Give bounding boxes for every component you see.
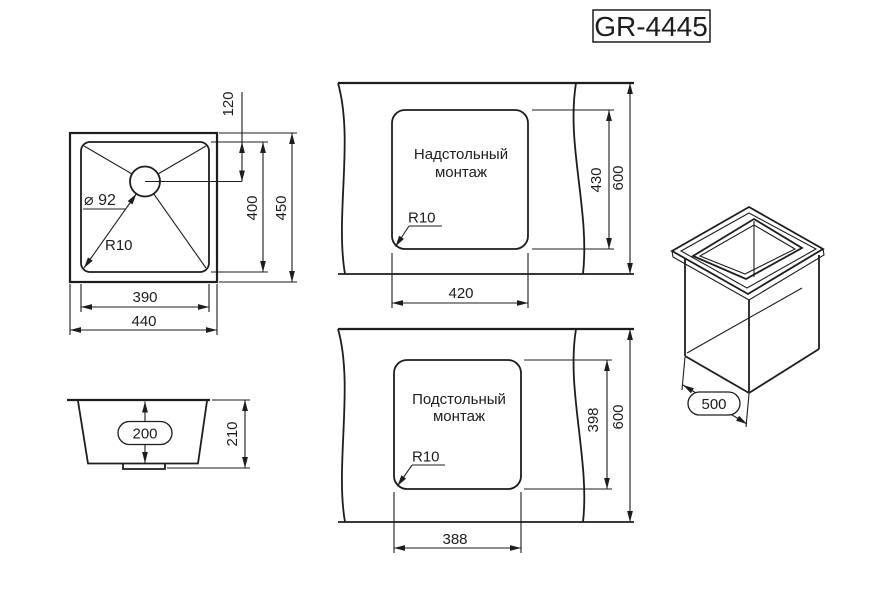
undermount-radius-leader (398, 465, 413, 486)
dim-120-label: 120 (220, 91, 237, 116)
drain-diameter-label: ⌀ 92 (84, 192, 116, 209)
iso-rim-outer (672, 207, 823, 294)
overmount-label-line2: монтаж (435, 164, 487, 181)
dim-390-label: 390 (132, 289, 157, 306)
iso-wall-bottom-edges (685, 349, 819, 393)
overmount-label-line1: Надстольный (414, 146, 508, 163)
dim-500-label: 500 (701, 396, 726, 413)
overmount-radius-label: R10 (408, 210, 436, 227)
dim-210-label: 210 (224, 421, 241, 446)
overmount-radius-leader (396, 226, 410, 247)
dim-430-label: 430 (588, 167, 605, 192)
top-view-diagonal-br (154, 194, 206, 268)
overmount-break-left (338, 83, 345, 274)
dim-200-label: 200 (132, 426, 157, 443)
dim-600-bottom-label: 600 (610, 404, 627, 429)
undermount-break-right (574, 329, 585, 522)
top-view-diagonal-tl (84, 146, 132, 174)
undermount-label-line1: Подстольный (412, 391, 506, 408)
dim-400-label: 400 (244, 195, 261, 220)
top-corner-radius-label: R10 (105, 237, 133, 254)
overmount-break-right (574, 83, 585, 274)
top-view: ⌀ 92 R10 120 400 450 390 440 (70, 91, 297, 335)
undermount-view: Подстольный монтаж R10 398 600 388 (338, 329, 634, 553)
dim-388-label: 388 (442, 531, 467, 548)
model-label-box: GR-4445 (593, 10, 710, 42)
undermount-radius-label: R10 (412, 449, 440, 466)
dim-398-label: 398 (585, 407, 602, 432)
overmount-view: Надстольный монтаж R10 430 600 420 (338, 83, 634, 308)
model-label: GR-4445 (594, 11, 708, 42)
dim-500-ext-right (746, 394, 749, 427)
side-view: 200 210 (67, 400, 250, 469)
dim-420-label: 420 (448, 285, 473, 302)
dim-450-label: 450 (273, 195, 290, 220)
dim-600-top-label: 600 (610, 165, 627, 190)
sink-drawing-svg: ⌀ 92 R10 120 400 450 390 440 200 (0, 0, 879, 598)
undermount-break-left (338, 329, 345, 522)
undermount-label-line2: монтаж (433, 408, 485, 425)
top-view-diagonal-tr (158, 146, 206, 174)
technical-drawing-sheet: ⌀ 92 R10 120 400 450 390 440 200 (0, 0, 879, 598)
iso-view: 500 (672, 207, 824, 427)
dim-440-label: 440 (131, 313, 156, 330)
